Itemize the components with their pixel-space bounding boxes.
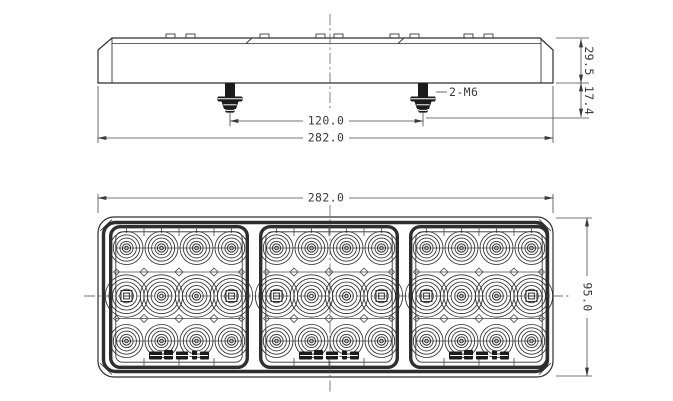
dimension-overall-height: 95.0 <box>556 218 595 376</box>
front-view: 282.0 95.0 <box>84 190 595 392</box>
dim-text-body-height: 29.5 <box>582 46 596 75</box>
led-panel-2 <box>255 227 402 368</box>
bolt-spec-label: 2-M6 <box>449 85 478 99</box>
technical-drawing-page: 120.0 282.0 2-M6 29.5 17.4 <box>0 0 673 401</box>
side-view: 120.0 282.0 2-M6 29.5 17.4 <box>98 14 596 144</box>
lamp-body-outline <box>98 38 553 83</box>
dim-text-overall-width-side: 282.0 <box>308 130 345 144</box>
led-panel-3 <box>405 227 552 368</box>
lamp-technical-drawing: 120.0 282.0 2-M6 29.5 17.4 <box>0 0 673 401</box>
mounting-bolt-right <box>411 83 436 113</box>
dimension-overall-width-front: 282.0 <box>98 190 553 213</box>
dim-text-overall-height: 95.0 <box>581 282 595 311</box>
dim-text-bolt-protrusion: 17.4 <box>582 86 596 115</box>
dim-text-bolt-spacing: 120.0 <box>308 113 345 127</box>
dim-text-overall-width-front: 282.0 <box>308 190 345 204</box>
bolt-spec-callout: 2-M6 <box>436 85 478 99</box>
dimension-body-height: 29.5 <box>556 38 596 83</box>
led-panel-1 <box>105 227 252 368</box>
mounting-bolt-left <box>218 83 243 113</box>
dimension-bolt-spacing: 120.0 <box>230 112 423 127</box>
